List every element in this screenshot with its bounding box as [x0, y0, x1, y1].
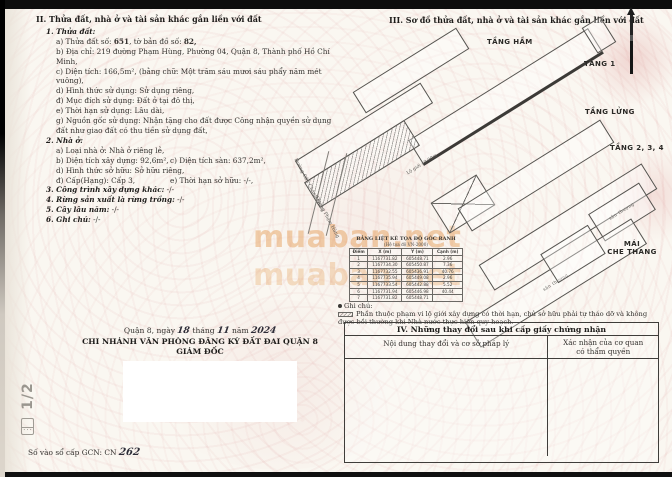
col-authority-confirmation: Xác nhận của cơ quan có thẩm quyền — [548, 336, 658, 358]
value: -/- — [91, 215, 101, 224]
col-x: X (m) — [368, 249, 402, 256]
label-basement: TẦNG HẦM — [487, 38, 533, 46]
house-term-line: e) Thời hạn sở hữu: -/-, — [170, 176, 253, 186]
label-roof-line2: CHE THANG — [600, 248, 664, 256]
section-3-title: III. Sơ đồ thửa đất, nhà ở và tài sản kh… — [389, 15, 644, 25]
scan-edge-top — [0, 0, 672, 9]
page-icon — [21, 418, 34, 435]
section-4-changes-table: IV. Những thay đổi sau khi cấp giấy chứn… — [344, 322, 659, 463]
table-row: 51167733.54605442.885.52 — [350, 281, 463, 288]
house-grade-line: đ) Cấp(Hạng): Cấp 3, — [36, 176, 170, 186]
house-grade-row: đ) Cấp(Hạng): Cấp 3, e) Thời hạn sở hữu:… — [36, 176, 338, 186]
col-point: Điểm — [350, 249, 368, 256]
col-authority-line2: có thẩm quyền — [552, 348, 654, 357]
section-2-title: II. Thửa đất, nhà ở và tài sản khác gắn … — [36, 15, 338, 25]
scan-edge-bottom — [0, 472, 672, 477]
month-label: tháng — [192, 326, 214, 335]
col-change-content: Nội dung thay đổi và cơ sở pháp lý — [345, 336, 548, 358]
note-label: Ghi chú: — [344, 302, 373, 310]
land-use-purpose-line: đ) Mục đích sử dụng: Đất ở tại đô thị, — [36, 96, 338, 106]
value: -/- — [175, 195, 185, 204]
label: 4. Rừng sản xuất là rừng trồng: — [46, 195, 175, 204]
coordinate-table-subtitle: (Hệ tọa độ VN-2000) — [349, 242, 463, 247]
date-prefix: Quận 8, ngày — [124, 326, 175, 335]
note-heading: Ghi chú: — [338, 302, 662, 310]
handwritten-gcn-number: 262 — [118, 447, 140, 458]
table-row: 31167732.55605436.9140.76 — [350, 268, 463, 275]
table-row: 21167734.30605450.877.36 — [350, 262, 463, 269]
label-roof-line1: MÁI — [600, 240, 664, 248]
handwritten-month: 11 — [216, 326, 230, 336]
land-heading: 1. Thửa đất: — [36, 27, 338, 37]
note-bullet-icon — [338, 304, 342, 308]
map-sheet-number: 82, — [184, 37, 197, 46]
label: 6. Ghi chú: — [46, 215, 91, 224]
land-use-term-line: e) Thời hạn sử dụng: Lâu dài, — [36, 106, 338, 116]
label-floor1: TẦNG 1 — [584, 60, 616, 68]
house-ownership-line: d) Hình thức sở hữu: Sở hữu riêng, — [36, 166, 338, 176]
label: a) Thửa đất số: — [56, 37, 114, 46]
table-row: 41167735.94605449.082.96 — [350, 275, 463, 282]
label-floor234: TẦNG 2, 3, 4 — [610, 144, 664, 152]
label: 5. Cây lâu năm: — [46, 205, 109, 214]
item-production-forest: 4. Rừng sản xuất là rừng trồng: -/- — [36, 195, 338, 205]
col-edge: Cạnh (m) — [433, 249, 463, 256]
coordinate-table-grid: Điểm X (m) Y (m) Cạnh (m) 11167731.82605… — [349, 248, 463, 302]
item-other-construction: 3. Công trình xây dựng khác: -/- — [36, 185, 338, 195]
house-floor-area-line: c) Diện tích sàn: 637,2m², — [170, 156, 266, 166]
value: -/- — [164, 185, 174, 194]
table-row: 61167731.94605446.9840.44 — [350, 288, 463, 295]
land-use-origin-line: g) Nguồn gốc sử dụng: Nhận tặng cho đất … — [36, 116, 338, 136]
north-arrow-icon — [630, 14, 633, 74]
col-y: Y (m) — [402, 249, 433, 256]
signer-role: GIÁM ĐỐC — [72, 347, 328, 356]
coordinate-table: BẢNG LIỆT KÊ TỌA ĐỘ GÓC RANH (Hệ tọa độ … — [349, 236, 463, 302]
change-content-cell — [345, 359, 548, 456]
section-4-title: IV. Những thay đổi sau khi cấp giấy chứn… — [345, 323, 658, 336]
house-build-area-line: b) Diện tích xây dựng: 92,6m², — [36, 156, 170, 166]
label-roof: MÁI CHE THANG — [600, 240, 664, 256]
gcn-registry-line: Số vào sổ cấp GCN: CN 262 — [28, 447, 140, 458]
parcel-number: 651 — [114, 37, 129, 46]
land-certificate-page: muaban.net muaban.net II. Thửa đất, nhà … — [0, 0, 672, 477]
house-type-line: a) Loại nhà ở: Nhà ở riêng lẻ, — [36, 146, 338, 156]
gcn-label: Số vào sổ cấp GCN: CN — [28, 448, 119, 457]
redacted-signature-area — [123, 361, 297, 422]
value: -/- — [109, 205, 119, 214]
authority-confirmation-cell — [548, 359, 658, 456]
date-line: Quận 8, ngày 18 tháng 11 năm 2024 — [72, 326, 328, 336]
signing-block: Quận 8, ngày 18 tháng 11 năm 2024 CHI NH… — [72, 326, 328, 356]
label: 3. Công trình xây dựng khác: — [46, 185, 164, 194]
land-address-line: b) Địa chỉ: 219 đường Phạm Hùng, Phường … — [36, 47, 338, 67]
land-area-line: c) Diện tích: 166,5m², (bằng chữ: Một tr… — [36, 67, 338, 87]
hatch-legend-swatch — [338, 312, 353, 317]
table-header-row: Điểm X (m) Y (m) Cạnh (m) — [350, 249, 463, 256]
label: , tờ bản đồ số: — [129, 37, 184, 46]
table-row: 11167731.82605448.712.96 — [350, 255, 463, 262]
handwritten-day: 18 — [177, 326, 191, 336]
section-4-body — [345, 359, 658, 456]
section-2-land-and-house: II. Thửa đất, nhà ở và tài sản khác gắn … — [36, 15, 338, 225]
section-4-header-row: Nội dung thay đổi và cơ sở pháp lý Xác n… — [345, 336, 658, 359]
year-label: năm — [232, 326, 249, 335]
land-parcel-number-line: a) Thửa đất số: 651, tờ bản đồ số: 82, — [36, 37, 338, 47]
item-notes: 6. Ghi chú: -/- — [36, 215, 338, 225]
handwritten-year: 2024 — [250, 326, 276, 336]
issuing-office: CHI NHÁNH VĂN PHÒNG ĐĂNG KÝ ĐẤT ĐAI QUẬN… — [72, 337, 328, 346]
label-mezzanine: TẦNG LỬNG — [585, 108, 635, 116]
item-perennial-trees: 5. Cây lâu năm: -/- — [36, 205, 338, 215]
page-number-marker: 1/2 — [8, 376, 48, 416]
table-row: 71167731.82605448.71 — [350, 295, 463, 302]
house-heading: 2. Nhà ở: — [36, 136, 338, 146]
land-use-form-line: d) Hình thức sử dụng: Sử dụng riêng, — [36, 86, 338, 96]
